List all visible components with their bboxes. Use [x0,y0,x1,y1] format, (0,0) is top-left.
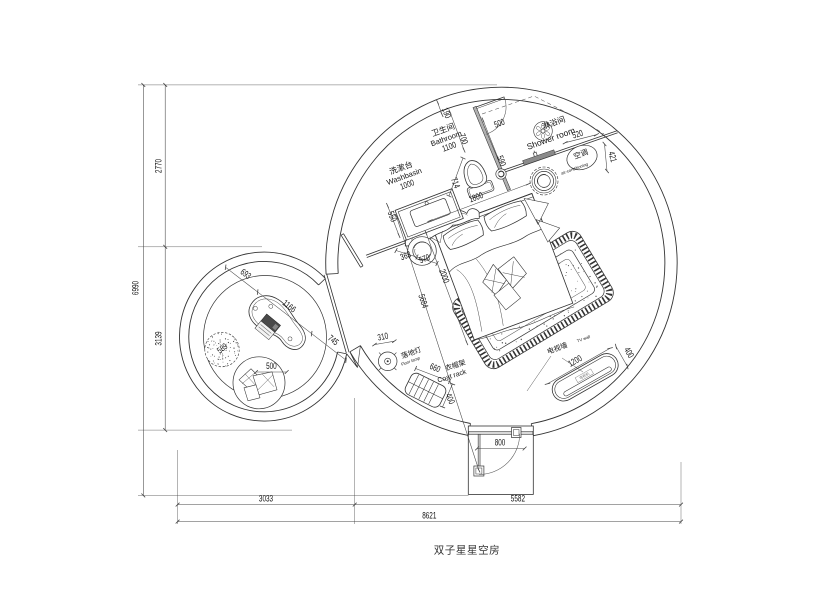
svg-text:8621: 8621 [422,511,436,521]
svg-text:3139: 3139 [154,331,164,345]
svg-text:800: 800 [495,438,506,448]
svg-text:双子星星空房: 双子星星空房 [434,544,501,557]
svg-text:2770: 2770 [154,159,164,173]
svg-text:6990: 6990 [131,281,141,295]
svg-text:5582: 5582 [511,494,525,504]
svg-text:500: 500 [266,361,277,371]
svg-text:3033: 3033 [259,494,273,504]
